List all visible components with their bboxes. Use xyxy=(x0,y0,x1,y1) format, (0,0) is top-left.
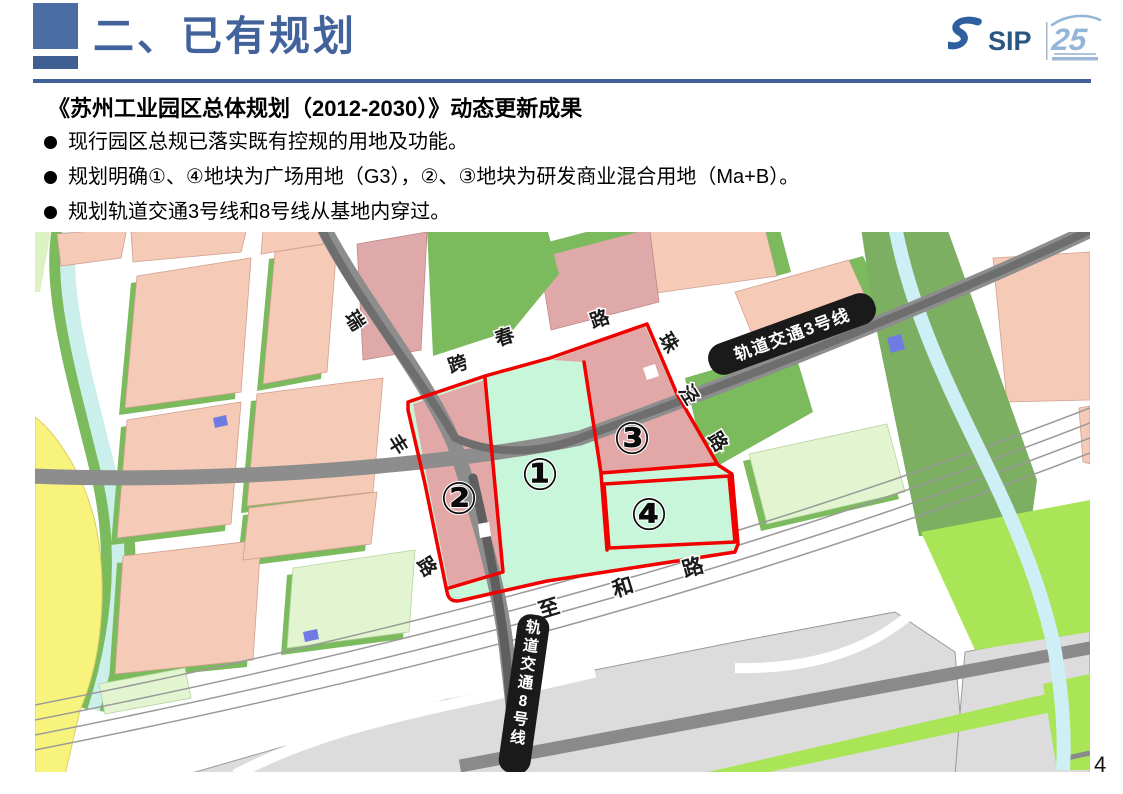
bullet-dot-icon xyxy=(44,171,57,184)
sip-anniversary-logo: SIP 25 xyxy=(948,12,1108,70)
slide: 二、已有规划 SIP 25 《苏州工业园区总体规划（2012-2030）》动态更… xyxy=(0,0,1123,794)
parcel-number-4: ④ xyxy=(630,491,667,540)
road-label-kuachun: 跨 xyxy=(445,351,471,378)
parcel-number-3: ③ xyxy=(613,415,650,464)
logo-divider xyxy=(1046,22,1048,60)
page-number: 4 xyxy=(1094,752,1106,778)
bullet-dot-icon xyxy=(44,206,57,219)
parcel-number-2: ② xyxy=(440,475,477,524)
planning-map: 瑞 跨 春 路 珠 泾 路 丰 路 至 和 路 轨道交通3号线 轨道交通8号线 … xyxy=(35,232,1090,772)
parcel-number-1: ① xyxy=(521,451,558,500)
header-divider xyxy=(33,79,1091,83)
title-accent-bar xyxy=(33,56,78,69)
sip-swoosh-icon xyxy=(948,20,979,46)
bullet-item: 规划轨道交通3号线和8号线从基地内穿过。 xyxy=(44,199,1084,234)
sip-logo-text: SIP xyxy=(988,26,1032,56)
bullet-text: 现行园区总规已落实既有控规的用地及功能。 xyxy=(68,129,468,156)
bullet-text: 规划明确①、④地块为广场用地（G3），②、③地块为研发商业混合用地（Ma+B）。 xyxy=(68,164,799,191)
map-park-northwest xyxy=(427,232,559,356)
road-label-feng: 丰 xyxy=(383,430,413,458)
road-label-feng: 路 xyxy=(412,552,442,581)
bullet-item: 现行园区总规已落实既有控规的用地及功能。 xyxy=(44,129,1084,164)
anniversary-fineprint-bar xyxy=(1052,57,1098,61)
bullet-text: 规划轨道交通3号线和8号线从基地内穿过。 xyxy=(68,199,450,226)
page-title: 二、已有规划 xyxy=(93,2,357,62)
title-accent-square xyxy=(33,3,78,49)
section-heading: 《苏州工业园区总体规划（2012-2030）》动态更新成果 xyxy=(48,91,582,123)
bullet-item: 规划明确①、④地块为广场用地（G3），②、③地块为研发商业混合用地（Ma+B）。 xyxy=(44,164,1084,199)
anniversary-fineprint-line xyxy=(1054,53,1096,55)
bullet-list: 现行园区总规已落实既有控规的用地及功能。 规划明确①、④地块为广场用地（G3），… xyxy=(44,129,1084,234)
anniversary-25-text: 25 xyxy=(1049,22,1089,57)
bullet-dot-icon xyxy=(44,136,57,149)
station-marker-line8 xyxy=(478,522,491,538)
